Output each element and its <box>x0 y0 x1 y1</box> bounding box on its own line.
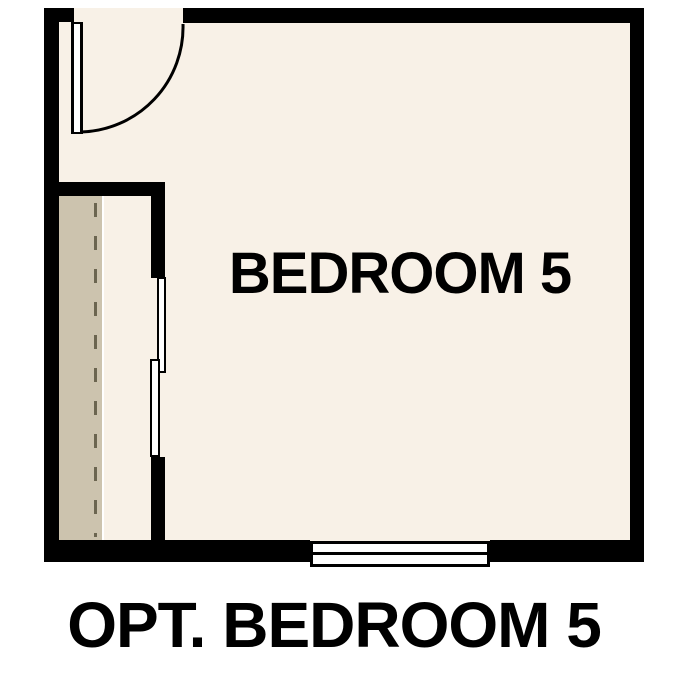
plan-caption: OPT. BEDROOM 5 <box>67 593 601 657</box>
closet-front-wall-lower <box>151 457 165 540</box>
wall-bottom-left-of-window <box>44 540 310 562</box>
window-mullion-line <box>313 552 487 555</box>
wall-top <box>183 8 644 23</box>
closet-top-wall <box>44 182 165 196</box>
wall-top-door-stub <box>44 8 74 22</box>
wall-left <box>44 8 59 562</box>
closet-bypass-door-panel-left <box>150 359 160 457</box>
wall-bottom-right-of-window <box>490 540 644 562</box>
closet-front-wall-upper <box>151 196 165 278</box>
floor-plan: BEDROOM 5 <box>0 0 687 687</box>
room-label: BEDROOM 5 <box>229 245 571 303</box>
entry-door-leaf <box>71 22 83 134</box>
wall-right <box>630 8 644 562</box>
window-symbol <box>310 541 490 567</box>
closet-shelf-edge-line <box>102 196 104 540</box>
closet-rod-dashed-line <box>94 203 97 537</box>
